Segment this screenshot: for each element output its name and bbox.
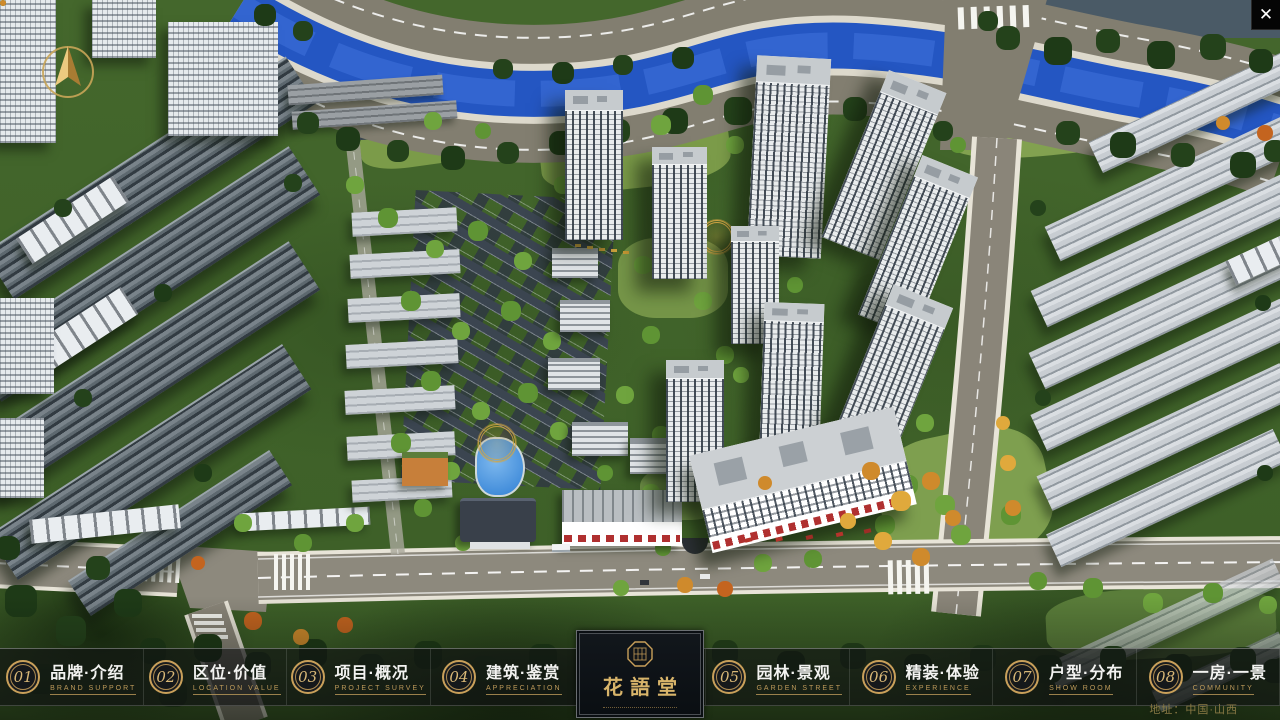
nav-item-interior[interactable]: 06 精装·体验EXPERIENCE — [849, 649, 993, 705]
close-button[interactable]: ✕ — [1251, 0, 1280, 30]
dropoff-bollards — [575, 244, 581, 247]
nav-badge: 07 — [1005, 660, 1039, 694]
trees-autumn — [0, 0, 6, 6]
nav-item-brand[interactable]: 01 品牌·介绍BRAND SUPPORT — [0, 649, 143, 705]
nav-badge: 01 — [6, 660, 40, 694]
gold-garden-feature — [478, 424, 516, 462]
clubhouse — [402, 452, 448, 486]
north-compass-icon — [38, 40, 98, 102]
nav-item-views[interactable]: 08 一房·一景COMMUNITY — [1136, 649, 1280, 705]
courtyard-wall — [470, 542, 530, 549]
nav-item-location[interactable]: 02 区位·价值LOCATION VALUE — [143, 649, 287, 705]
sales-center — [562, 490, 682, 546]
nav-item-garden[interactable]: 05 园林·景观GARDEN STREET — [705, 649, 849, 705]
nav-badge: 02 — [149, 660, 183, 694]
project-logo[interactable]: 花語堂 — [576, 630, 704, 718]
logo-title: 花語堂 — [596, 671, 684, 700]
address-text: 地址：中国·山西 — [1149, 701, 1238, 717]
nav-badge: 05 — [712, 660, 746, 694]
masterplan-screen: ✕ 01 品牌·介绍BRAND SUPPORT 02 区位·价值LOCATION… — [0, 0, 1280, 720]
logo-subtitle-rule — [603, 704, 677, 708]
nav-badge: 04 — [442, 660, 476, 694]
nav-item-floorplans[interactable]: 07 户型·分布SHOW ROOM — [992, 649, 1136, 705]
nav-badge: 06 — [862, 660, 896, 694]
nav-badge: 03 — [291, 660, 325, 694]
nav-item-project[interactable]: 03 项目·概况PROJECT SURVEY — [286, 649, 430, 705]
nav-badge: 08 — [1149, 660, 1183, 694]
chinese-gatehouse — [460, 498, 536, 542]
seal-emblem-icon — [626, 640, 654, 668]
nav-item-architecture[interactable]: 04 建筑·鉴赏APPRECIATION — [430, 649, 574, 705]
